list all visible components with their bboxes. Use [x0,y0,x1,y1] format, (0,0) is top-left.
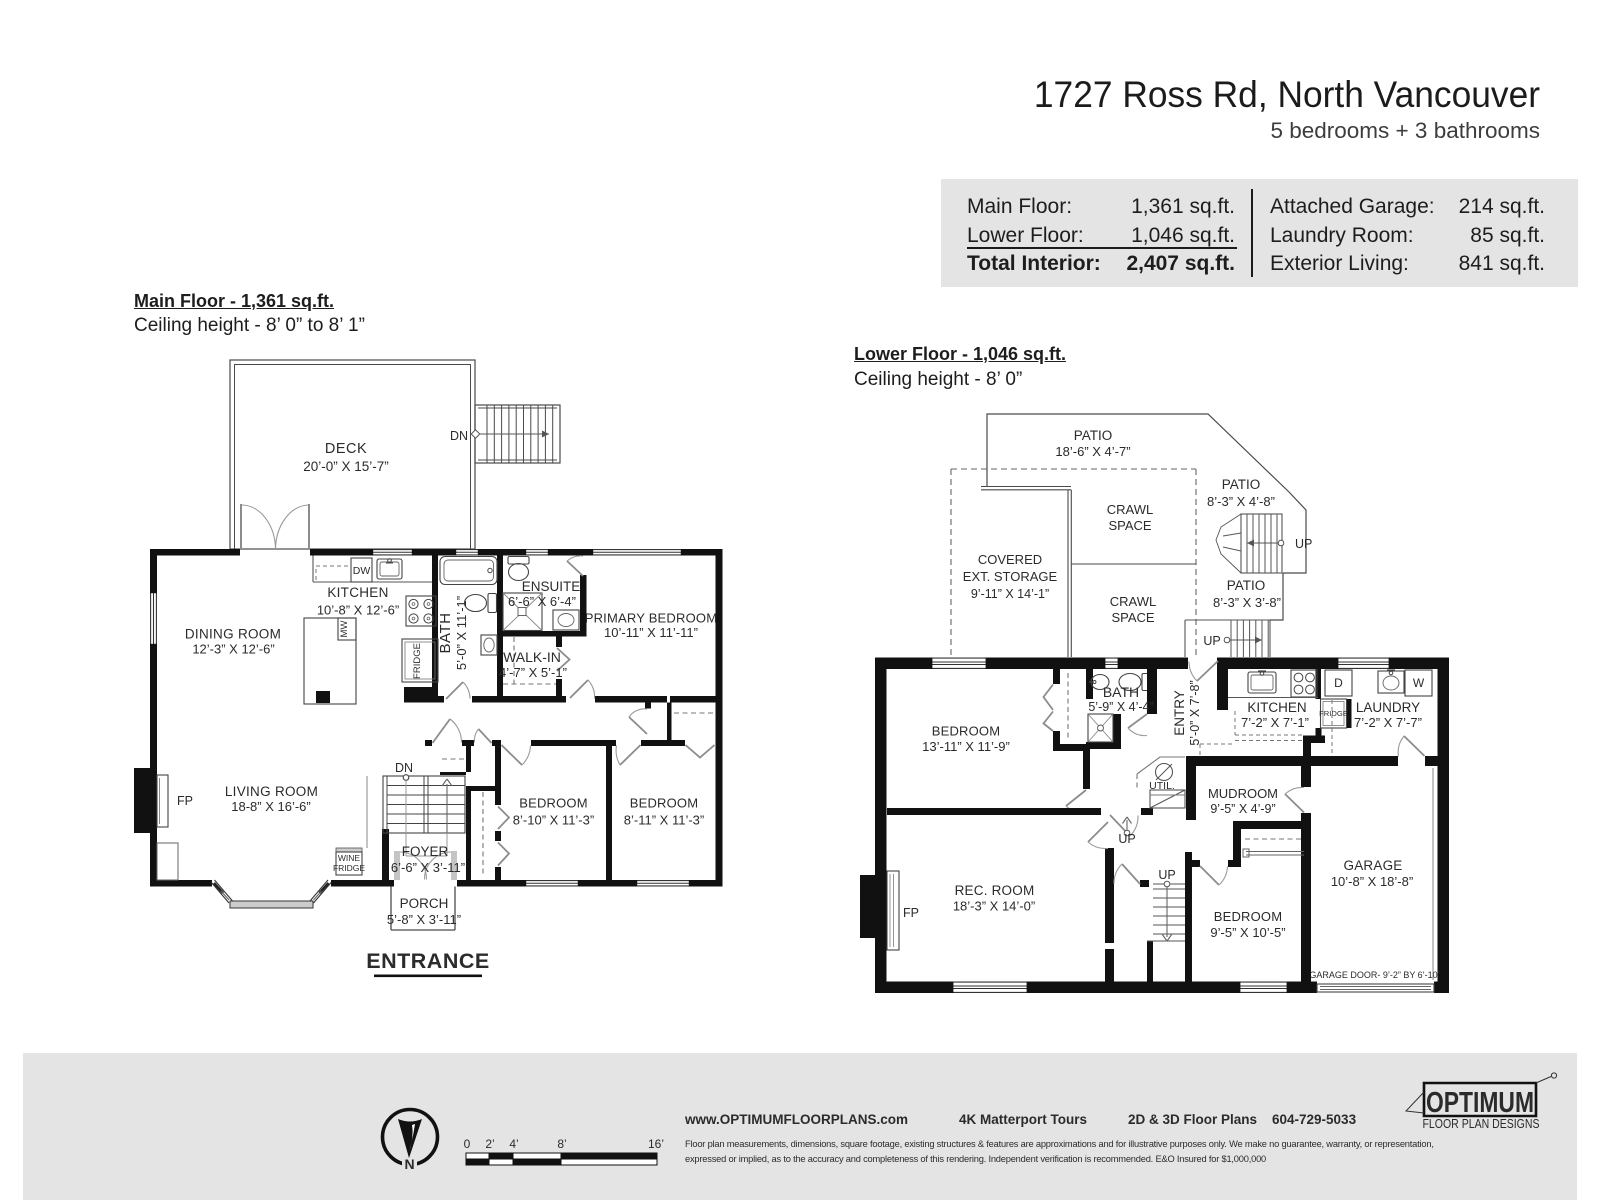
svg-text:ENTRY: ENTRY [1172,690,1187,736]
svg-text:CRAWL: CRAWL [1110,594,1156,609]
svg-text:18-8” X 16’-6”: 18-8” X 16’-6” [231,799,310,814]
svg-text:COVERED: COVERED [978,552,1042,567]
svg-text:6’-6” X 3’-11”: 6’-6” X 3’-11” [391,860,465,875]
svg-text:9’-5” X 10’-5”: 9’-5” X 10’-5” [1210,925,1285,940]
svg-text:FRIDGE: FRIDGE [333,863,365,873]
svg-text:5’-8” X 3’-11”: 5’-8” X 3’-11” [387,912,461,927]
svg-text:16’: 16’ [648,1137,664,1151]
svg-text:8’-3” X 3’-8”: 8’-3” X 3’-8” [1213,595,1281,610]
svg-text:13’-11” X 11’-9”: 13’-11” X 11’-9” [922,739,1010,754]
svg-text:GARAGE: GARAGE [1344,858,1403,873]
svg-text:2’: 2’ [485,1137,494,1151]
svg-text:MUDROOM: MUDROOM [1208,786,1278,801]
svg-text:18’-6” X 4’-7”: 18’-6” X 4’-7” [1055,444,1130,459]
svg-text:0: 0 [464,1137,471,1151]
svg-text:SPACE: SPACE [1108,518,1151,533]
svg-text:BEDROOM: BEDROOM [932,724,1001,739]
svg-text:BEDROOM: BEDROOM [1214,909,1283,924]
svg-text:8’-10” X 11’-3”: 8’-10” X 11’-3” [513,813,594,828]
svg-text:8’-11” X 11’-3”: 8’-11” X 11’-3” [624,813,704,828]
svg-text:N: N [404,1156,414,1172]
svg-text:LAUNDRY: LAUNDRY [1356,700,1420,715]
svg-text:GARAGE DOOR- 9’-2” BY 6’-10”: GARAGE DOOR- 9’-2” BY 6’-10” [1309,970,1440,980]
svg-text:5’-0” X 11’-1”: 5’-0” X 11’-1” [454,596,469,670]
svg-text:REC. ROOM: REC. ROOM [955,883,1035,898]
svg-text:DECK: DECK [325,441,367,457]
svg-text:PORCH: PORCH [400,896,449,911]
svg-text:expressed or implied, as to th: expressed or implied, as to the accuracy… [685,1154,1266,1164]
svg-text:BATH: BATH [437,613,454,654]
svg-text:12’-3” X 12’-6”: 12’-3” X 12’-6” [192,642,274,657]
svg-text:MW: MW [339,621,350,638]
svg-text:PATIO: PATIO [1074,428,1113,443]
svg-text:EXT. STORAGE: EXT. STORAGE [963,569,1058,584]
svg-text:8’-3” X 4’-8”: 8’-3” X 4’-8” [1207,494,1275,509]
svg-text:10’-8” X 12’-6”: 10’-8” X 12’-6” [317,603,399,618]
svg-text:6’-6” X 6’-4”: 6’-6” X 6’-4” [508,594,576,609]
svg-text:20’-0” X 15’-7”: 20’-0” X 15’-7” [303,459,389,474]
svg-text:BEDROOM: BEDROOM [519,796,588,811]
svg-text:UP: UP [1203,634,1220,648]
svg-text:D: D [1334,676,1343,690]
svg-text:FLOOR PLAN DESIGNS: FLOOR PLAN DESIGNS [1423,1116,1540,1131]
svg-text:7’-2” X 7’-1”: 7’-2” X 7’-1” [1241,715,1309,730]
svg-text:www.OPTIMUMFLOORPLANS.com: www.OPTIMUMFLOORPLANS.com [684,1112,908,1127]
svg-text:604-729-5033: 604-729-5033 [1272,1112,1357,1127]
svg-text:4K Matterport Tours: 4K Matterport Tours [959,1112,1087,1127]
svg-text:5’-0” X 7’-8”: 5’-0” X 7’-8” [1188,680,1202,745]
svg-text:4’-7” X 5’-1”: 4’-7” X 5’-1” [499,665,567,680]
svg-text:FP: FP [177,794,193,808]
svg-text:10’-8” X 18’-8”: 10’-8” X 18’-8” [1331,874,1413,889]
svg-text:KITCHEN: KITCHEN [1247,700,1306,715]
svg-text:ENTRANCE: ENTRANCE [366,949,489,973]
svg-text:2D & 3D Floor Plans: 2D & 3D Floor Plans [1128,1112,1257,1127]
svg-text:SPACE: SPACE [1111,610,1154,625]
svg-text:FRIDGE: FRIDGE [1319,709,1348,718]
svg-text:UP: UP [1118,832,1135,846]
svg-text:WALK-IN: WALK-IN [503,649,561,665]
svg-text:CRAWL: CRAWL [1107,502,1153,517]
svg-text:LIVING ROOM: LIVING ROOM [225,784,318,799]
svg-text:8’: 8’ [557,1137,566,1151]
svg-text:UP: UP [1158,868,1175,882]
svg-text:DN: DN [395,761,413,775]
svg-text:WINE: WINE [338,853,361,863]
svg-text:DN: DN [450,429,468,443]
svg-text:9’-5” X 4’-9”: 9’-5” X 4’-9” [1210,802,1275,816]
svg-text:9’-11” X 14’-1”: 9’-11” X 14’-1” [971,587,1049,601]
svg-text:KITCHEN: KITCHEN [327,585,388,600]
svg-text:ENSUITE: ENSUITE [522,579,581,594]
svg-text:4’: 4’ [509,1137,518,1151]
svg-text:UP: UP [1295,537,1312,551]
svg-text:PATIO: PATIO [1222,477,1261,492]
svg-text:OPTIMUM: OPTIMUM [1426,1087,1534,1119]
svg-text:18’-3” X 14’-0”: 18’-3” X 14’-0” [953,899,1035,914]
svg-text:BEDROOM: BEDROOM [630,796,699,811]
svg-text:DINING ROOM: DINING ROOM [185,627,281,642]
svg-text:5’-9” X 4’-4”: 5’-9” X 4’-4” [1088,700,1153,714]
svg-text:Floor plan measurements, dimen: Floor plan measurements, dimensions, squ… [685,1139,1434,1149]
svg-text:PRIMARY BEDROOM: PRIMARY BEDROOM [585,611,718,626]
svg-text:BATH: BATH [1103,684,1139,700]
svg-text:FOYER: FOYER [402,844,449,859]
svg-text:PATIO: PATIO [1227,578,1266,593]
svg-text:10’-11” X 11’-11”: 10’-11” X 11’-11” [604,625,698,640]
svg-text:FRIDGE: FRIDGE [412,643,423,679]
svg-text:7’-2” X 7’-7”: 7’-2” X 7’-7” [1354,715,1422,730]
svg-text:W: W [1413,676,1425,690]
svg-text:DW: DW [353,565,371,577]
svg-text:FP: FP [903,906,919,920]
